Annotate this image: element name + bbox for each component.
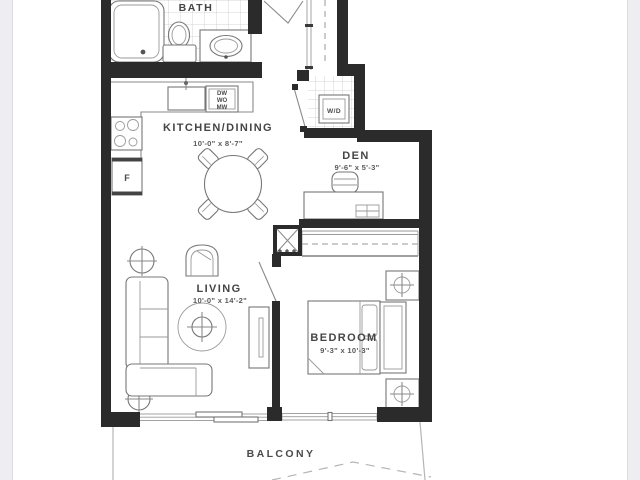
desk-chair xyxy=(332,172,358,193)
microwave-label: MW xyxy=(217,105,228,111)
dishwasher-label: DW xyxy=(217,91,227,97)
living-label: LIVING xyxy=(196,283,241,295)
bedroom-dims: 9'-3" x 10'-3" xyxy=(320,346,370,355)
floorplan-image: BATH KITCHEN/DINING 10'-0" x 8'-7" DEN 9… xyxy=(0,0,640,480)
floorplan-drawing: BATH KITCHEN/DINING 10'-0" x 8'-7" DEN 9… xyxy=(0,0,640,480)
balcony-dashed-outline xyxy=(272,462,431,480)
kitchen-label: KITCHEN/DINING xyxy=(163,122,273,134)
laundry-closet xyxy=(292,76,354,132)
balcony-edge-right xyxy=(420,422,425,480)
den xyxy=(304,172,383,219)
living-room xyxy=(125,245,269,413)
coffee-table xyxy=(187,312,217,342)
bath-vanity-sink xyxy=(200,30,251,62)
stove-cooktop xyxy=(111,117,142,150)
tv-console xyxy=(249,307,269,368)
kitchen-dims: 10'-0" x 8'-7" xyxy=(193,139,243,148)
fridge-label: F xyxy=(124,173,130,183)
bathtub xyxy=(109,1,164,62)
dining-table xyxy=(197,147,270,221)
plant-top xyxy=(127,246,157,276)
den-dims: 9'-6" x 5'-3" xyxy=(334,163,379,172)
bedroom-label: BEDROOM xyxy=(310,332,377,344)
bedroom-window xyxy=(282,413,377,421)
balcony xyxy=(113,412,431,480)
living-window xyxy=(138,412,268,422)
shaft-column xyxy=(275,227,300,254)
kitchen xyxy=(110,77,269,221)
den-label: DEN xyxy=(342,150,369,162)
living-dims: 10'-0" x 14'-2" xyxy=(193,296,247,305)
nightstand-bottom xyxy=(386,379,419,409)
armchair xyxy=(186,245,218,276)
bedroom-door-swing xyxy=(259,262,276,301)
nightstand-top xyxy=(386,271,419,300)
washer-dryer-label: W/D xyxy=(327,108,341,115)
wall-oven-label: WO xyxy=(217,98,228,104)
entry-door-swing xyxy=(264,1,303,23)
bath-label: BATH xyxy=(179,2,214,14)
balcony-label: BALCONY xyxy=(247,448,316,460)
laundry-door-swing xyxy=(294,88,306,130)
entry-corridor xyxy=(264,0,325,70)
desk xyxy=(304,192,383,219)
bedroom-closet xyxy=(302,231,418,256)
